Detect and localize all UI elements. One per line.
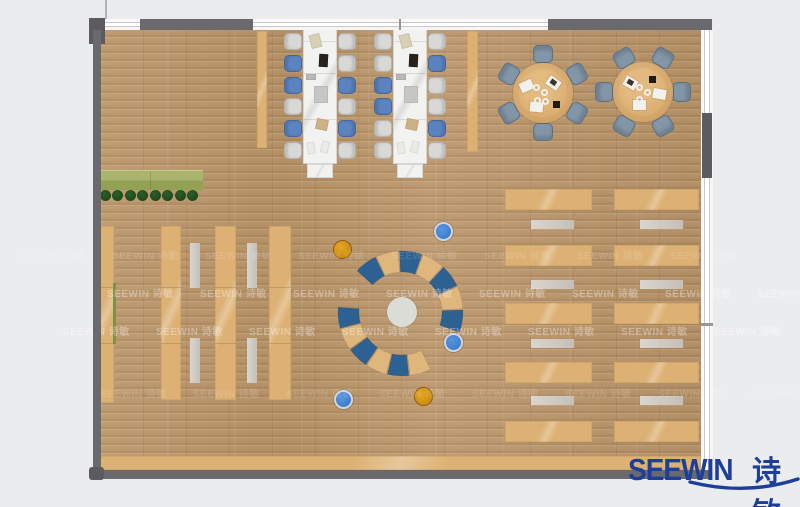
top-thin-line bbox=[105, 0, 107, 19]
brand-swoosh-icon bbox=[688, 477, 800, 495]
watermark-text: SEEWIN 诗敏 bbox=[751, 385, 800, 400]
window-right bbox=[701, 30, 713, 470]
floor-plan-canvas: SEEWIN 诗敏SEEWIN 诗敏SEEWIN 诗敏SEEWIN 诗敏SEEW… bbox=[0, 0, 800, 507]
watermark-text: SEEWIN 诗敏 bbox=[714, 323, 781, 338]
watermark-text: SEEWIN 诗敏 bbox=[19, 247, 86, 262]
wall-bottom bbox=[93, 470, 712, 479]
window-right-divider bbox=[701, 323, 713, 326]
watermark-text: SEEWIN 诗敏 bbox=[758, 285, 800, 300]
brand-logo: SEEWIN 诗敏 bbox=[626, 446, 798, 501]
wall-right-solid bbox=[702, 113, 712, 178]
wood-floor bbox=[100, 29, 702, 471]
